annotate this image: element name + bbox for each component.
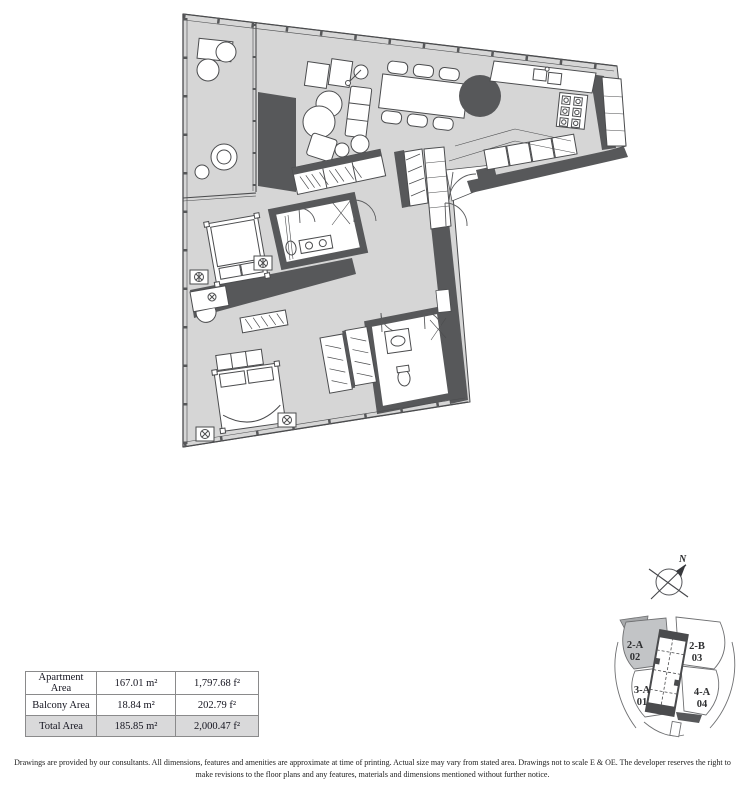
- table-row-apartment: Apartment Area 167.01 m² 1,797.68 f²: [26, 672, 259, 695]
- living-room-group: [303, 59, 372, 163]
- area-table: Apartment Area 167.01 m² 1,797.68 f² Bal…: [25, 671, 259, 737]
- plant-icon: [196, 427, 214, 441]
- unit-2a-name: 2-A: [627, 640, 644, 651]
- area-label: Balcony Area: [26, 695, 97, 716]
- table-row-balcony: Balcony Area 18.84 m² 202.79 f²: [26, 695, 259, 716]
- unit-4a-name: 4-A: [694, 687, 711, 698]
- unit-2b-number: 03: [692, 653, 703, 664]
- stove: [556, 93, 587, 130]
- bathroom-2: [272, 196, 364, 266]
- unit-3a-number: 01: [637, 697, 648, 708]
- area-label: Apartment Area: [26, 672, 97, 695]
- plant-icon: [254, 256, 272, 270]
- area-metric: 185.85 m²: [97, 716, 176, 737]
- bathroom-1: [368, 310, 452, 410]
- unit-2b-name: 2-B: [689, 641, 705, 652]
- master-closets: [319, 327, 377, 393]
- unit-2a-number: 02: [630, 652, 641, 663]
- unit-4a-number: 04: [697, 699, 708, 710]
- unit-3a-name: 3-A: [634, 685, 651, 696]
- area-metric: 18.84 m²: [97, 695, 176, 716]
- area-imperial: 2,000.47 f²: [176, 716, 259, 737]
- area-label: Total Area: [26, 716, 97, 737]
- plant-icon: [278, 413, 296, 427]
- area-metric: 167.01 m²: [97, 672, 176, 695]
- compass-rose: N: [649, 554, 688, 599]
- key-plan: 2-A 02 2-B 03 3-A 01 4-A 04: [615, 616, 735, 737]
- north-label: N: [678, 554, 687, 565]
- table-row-total: Total Area 185.85 m² 2,000.47 f²: [26, 716, 259, 737]
- disclaimer-text: Drawings are provided by our consultants…: [12, 757, 734, 782]
- brochure-page: N 2-A 02 2-B 03 3-A 01 4-A 04: [0, 0, 745, 785]
- area-imperial: 202.79 f²: [176, 695, 259, 716]
- north-arrow-icon: [676, 564, 686, 577]
- floor-plan-svg: N 2-A 02 2-B 03 3-A 01 4-A 04: [0, 0, 745, 785]
- leg-wall-niche: [436, 289, 451, 312]
- plant-icon: [190, 270, 208, 284]
- area-imperial: 1,797.68 f²: [176, 672, 259, 695]
